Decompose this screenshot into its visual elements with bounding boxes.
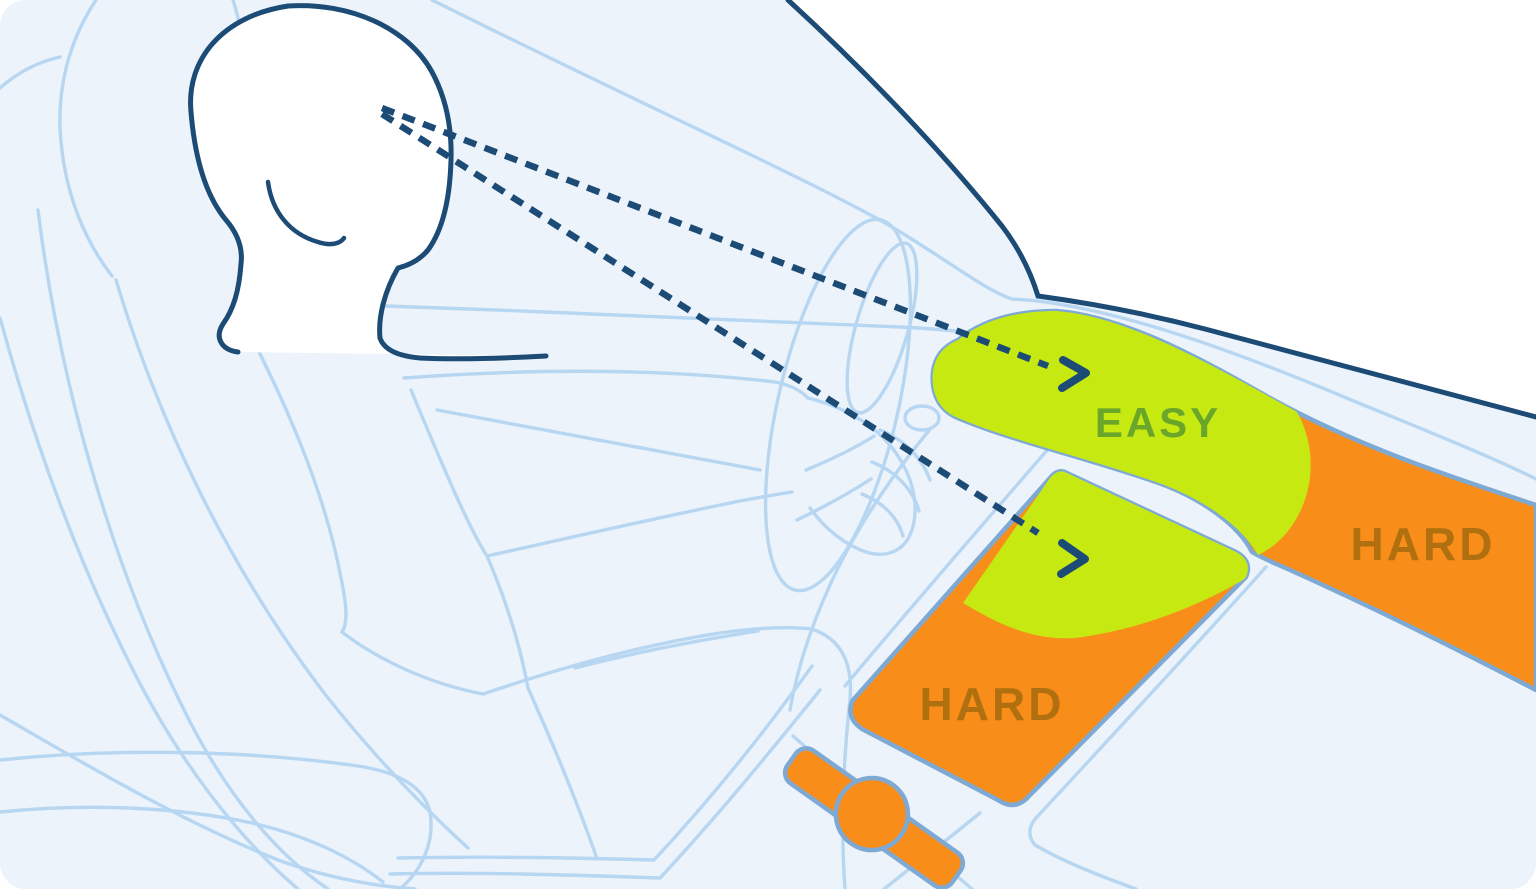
dashboard-easy-label: EASY bbox=[1095, 399, 1221, 446]
touchscreen bbox=[850, 471, 1247, 805]
driver-torso bbox=[411, 390, 487, 556]
touchscreen-hard-label: HARD bbox=[920, 678, 1065, 730]
driver-thigh bbox=[483, 628, 812, 694]
cockpit-illustration: EASY HARD HARD bbox=[0, 0, 1536, 889]
driver-head bbox=[191, 6, 546, 359]
driver-hand bbox=[808, 398, 915, 554]
driver-arm bbox=[404, 371, 808, 398]
driver-leg bbox=[487, 556, 596, 856]
stalk-detail bbox=[905, 406, 939, 430]
seat-headrest bbox=[60, 0, 112, 276]
floor-edge bbox=[398, 666, 812, 860]
dashboard-hard-label: HARD bbox=[1351, 518, 1496, 570]
